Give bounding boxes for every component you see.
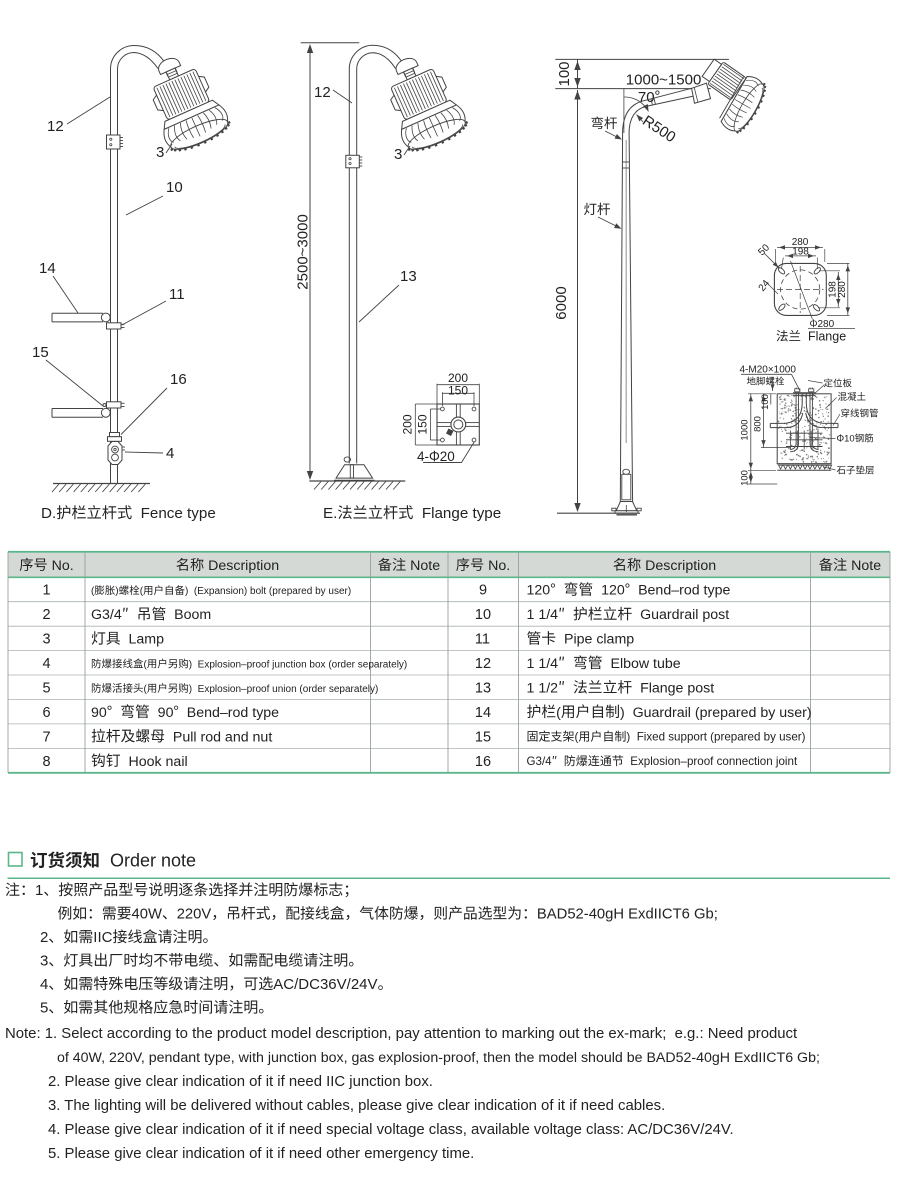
svg-text:120: 120	[527, 583, 551, 599]
svg-text:8: 8	[43, 754, 51, 770]
svg-text:3: 3	[43, 632, 51, 648]
svg-text:20: 20	[440, 449, 455, 464]
svg-text:No.: No.	[484, 558, 510, 574]
svg-text:90: 90	[91, 705, 107, 721]
svg-text:) (Expansion) bolt (prepared: ) (Expansion) bolt (prepared by user)	[185, 586, 351, 597]
svg-text:of 40W, 220V, pendant type, wi: of 40W, 220V, pendant type, with junctio…	[57, 1050, 820, 1066]
svg-text:3. The lighting will be delive: 3. The lighting will be delivered withou…	[48, 1098, 665, 1114]
svg-text:3: 3	[40, 953, 48, 970]
svg-text:(: (	[144, 684, 148, 695]
svg-text:1: 1	[35, 882, 43, 899]
svg-text:14: 14	[475, 705, 491, 721]
svg-text:1000: 1000	[740, 419, 751, 440]
svg-text:IIC: IIC	[93, 929, 112, 946]
svg-text:198: 198	[792, 247, 809, 258]
svg-text:G3/4: G3/4	[91, 607, 122, 623]
svg-text:Description: Description	[204, 558, 279, 574]
svg-text:7: 7	[43, 729, 51, 745]
svg-text:(: (	[140, 586, 144, 597]
svg-text:Note: Note	[406, 558, 440, 574]
svg-text:D.: D.	[41, 505, 56, 522]
svg-text:Flange post: Flange post	[632, 681, 714, 697]
svg-text:Bend–rod type: Bend–rod type	[179, 705, 279, 721]
svg-text:Pull rod and nut: Pull rod and nut	[165, 729, 272, 745]
svg-text:100: 100	[740, 470, 751, 486]
svg-text:Fence type: Fence type	[132, 505, 216, 522]
svg-text:24: 24	[757, 278, 773, 294]
svg-text:) Explosion–proof junction bo: ) Explosion–proof junction box (order se…	[189, 659, 407, 670]
svg-text:12: 12	[314, 84, 331, 101]
svg-text:(: (	[575, 731, 579, 744]
svg-text:4: 4	[166, 445, 174, 462]
svg-text:Order note: Order note	[105, 851, 196, 871]
svg-text:16: 16	[170, 371, 187, 388]
svg-text:220V: 220V	[177, 907, 212, 923]
svg-text:Lamp: Lamp	[121, 632, 164, 648]
svg-text:800: 800	[753, 416, 764, 432]
svg-text:AC/DC36V/24V: AC/DC36V/24V	[273, 976, 377, 993]
svg-text:10: 10	[475, 607, 491, 623]
svg-text:1 1/4: 1 1/4	[527, 607, 559, 623]
svg-text:Guardrail post: Guardrail post	[632, 607, 729, 623]
svg-text:200: 200	[401, 414, 415, 434]
svg-text:100: 100	[760, 394, 771, 410]
svg-text:3: 3	[156, 144, 164, 161]
svg-text:100: 100	[556, 61, 573, 86]
svg-text:Note: 1. Select according to t: Note: 1. Select according to the product…	[5, 1026, 798, 1042]
svg-text:(: (	[556, 705, 561, 721]
svg-text:(: (	[144, 659, 148, 670]
svg-text:R500: R500	[639, 112, 678, 146]
svg-text:4. Please give clear indicatio: 4. Please give clear indication of it if…	[48, 1122, 734, 1138]
svg-text:10: 10	[166, 179, 183, 196]
svg-text:5: 5	[40, 1000, 48, 1017]
svg-text:150: 150	[448, 384, 468, 398]
svg-text:6: 6	[43, 705, 51, 721]
svg-text:Hook nail: Hook nail	[121, 754, 188, 770]
svg-text:5. Please give clear indicatio: 5. Please give clear indication of it if…	[48, 1146, 474, 1162]
svg-text:90: 90	[150, 705, 174, 721]
svg-text:6000: 6000	[553, 286, 570, 319]
svg-text:Flange type: Flange type	[413, 505, 501, 522]
svg-text:G3/4: G3/4	[527, 755, 553, 768]
svg-text:Bend–rod type: Bend–rod type	[630, 583, 730, 599]
svg-text:): )	[115, 586, 118, 597]
svg-text:1000~1500: 1000~1500	[626, 72, 702, 89]
svg-text:No.: No.	[48, 558, 74, 574]
svg-text:Boom: Boom	[166, 607, 211, 623]
svg-text:) Explosion–proof union (orde: ) Explosion–proof union (order separatel…	[189, 684, 379, 695]
svg-text:40W: 40W	[132, 907, 162, 923]
svg-text:2. Please give clear indicatio: 2. Please give clear indication of it if…	[48, 1074, 433, 1090]
svg-text:50: 50	[756, 242, 772, 258]
svg-text:Explosion–proof connection joi: Explosion–proof connection joint	[624, 755, 798, 768]
svg-text:5: 5	[43, 681, 51, 697]
svg-text:2500~3000: 2500~3000	[295, 214, 312, 290]
svg-text:2: 2	[43, 607, 51, 623]
svg-text:Pipe clamp: Pipe clamp	[556, 632, 634, 648]
svg-text:280: 280	[837, 281, 848, 298]
svg-text:14: 14	[39, 260, 56, 277]
svg-text:1 1/2: 1 1/2	[527, 681, 559, 697]
svg-text:E.: E.	[323, 505, 337, 522]
svg-text:11: 11	[475, 632, 490, 648]
svg-text:120: 120	[593, 583, 625, 599]
svg-text:15: 15	[32, 344, 49, 361]
svg-text:4-M20×1000: 4-M20×1000	[740, 365, 797, 376]
svg-text:2: 2	[40, 929, 48, 946]
svg-text:(: (	[91, 586, 95, 597]
svg-text:12: 12	[47, 118, 64, 135]
svg-text:10: 10	[844, 434, 855, 445]
svg-text:1 1/4: 1 1/4	[527, 656, 559, 672]
svg-text:Description: Description	[641, 558, 716, 574]
svg-text:15: 15	[475, 729, 491, 745]
svg-text:13: 13	[400, 268, 417, 285]
svg-text:12: 12	[475, 656, 491, 672]
svg-text:BAD52-40gH ExdIICT6 Gb;: BAD52-40gH ExdIICT6 Gb;	[537, 907, 718, 923]
svg-text:4: 4	[43, 656, 51, 672]
svg-text:Note: Note	[847, 558, 881, 574]
svg-text:1: 1	[43, 583, 51, 599]
svg-text:3: 3	[394, 146, 402, 163]
svg-text:4: 4	[40, 976, 48, 993]
svg-text:13: 13	[475, 681, 491, 697]
svg-text:16: 16	[475, 754, 491, 770]
svg-text:) Fixed support (prepared by: ) Fixed support (prepared by user)	[626, 731, 805, 744]
svg-text:Elbow tube: Elbow tube	[603, 656, 681, 672]
svg-text:9: 9	[479, 583, 487, 599]
svg-text:Flange: Flange	[801, 330, 846, 344]
svg-text:4-: 4-	[417, 449, 429, 464]
svg-text:11: 11	[169, 286, 185, 303]
svg-text:150: 150	[416, 414, 430, 434]
svg-text:) Guardrail (prepared by user: ) Guardrail (prepared by user)	[620, 705, 812, 721]
